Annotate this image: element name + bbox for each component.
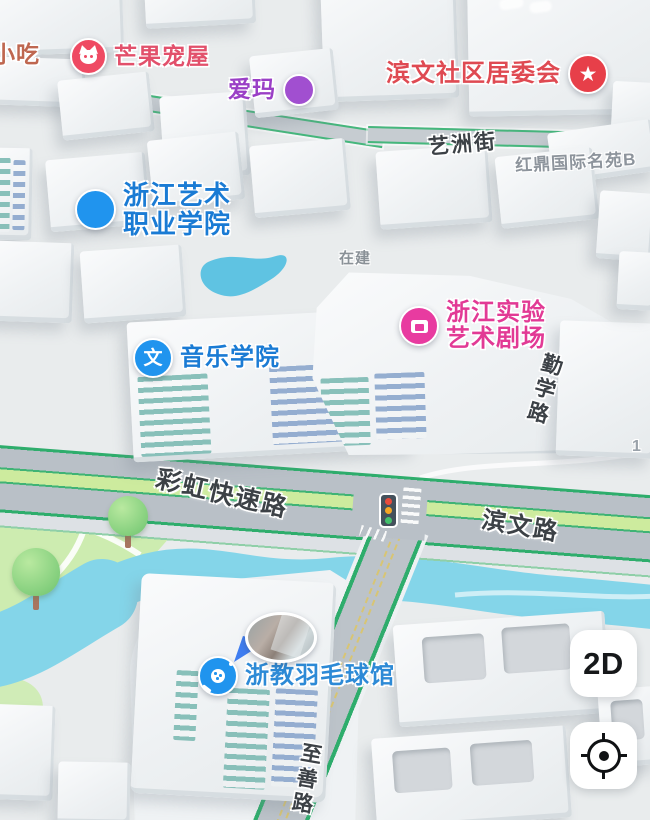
wen-glyph: 文 (143, 349, 162, 368)
poi-label-theater-line2: 艺术剧场 (446, 326, 546, 352)
building (0, 241, 74, 324)
building (0, 148, 33, 241)
poi-binwen-committee[interactable]: ★ 滨文社区居委会 (386, 54, 608, 94)
poi-label-aima: 爱玛 (228, 77, 276, 102)
poi-label-mango: 芒果宠屋 (114, 44, 210, 69)
poi-experimental-art-theater[interactable]: 浙江实验 艺术剧场 (399, 300, 546, 353)
shop-icon (283, 74, 315, 106)
building-windows (137, 373, 211, 457)
building (249, 138, 351, 218)
poi-label-theater-line1: 浙江实验 (446, 300, 546, 326)
pond (201, 255, 287, 296)
area-label-under-construction: 在建 (339, 247, 371, 268)
poi-aima[interactable]: 爱玛 (228, 74, 315, 106)
building (617, 251, 650, 311)
theater-icon (399, 306, 439, 346)
poi-badminton-hall[interactable]: 浙教羽毛球馆 (198, 656, 395, 696)
area-label-partial-number: 1 (632, 438, 642, 456)
poi-label-xiaochi: 小吃 (0, 42, 40, 67)
poi-label-badminton: 浙教羽毛球馆 (245, 663, 395, 689)
poi-xiaochi[interactable]: 小吃 (0, 42, 40, 67)
wen-icon: 文 (133, 338, 173, 378)
traffic-light-icon (379, 493, 398, 528)
badminton-icon (198, 656, 238, 696)
roof-inset (470, 740, 535, 786)
building-windows (173, 670, 199, 741)
view-mode-label: 2D (583, 646, 624, 682)
marker-photo-thumbnail (245, 612, 317, 663)
building (371, 725, 572, 820)
view-mode-2d-button[interactable]: 2D (570, 630, 637, 697)
poi-label-college: 浙江艺术 职业学院 (123, 181, 231, 238)
poi-music-school[interactable]: 文 音乐学院 (133, 338, 280, 378)
poi-label-college-line1: 浙江艺术 (123, 181, 231, 210)
photo-bubble-marker[interactable] (232, 610, 314, 662)
roof-inset (501, 623, 572, 674)
poi-label-theater: 浙江实验 艺术剧场 (446, 300, 546, 353)
poi-label-college-line2: 职业学院 (123, 210, 231, 239)
building-windows (0, 158, 11, 232)
poi-mango-pet-house[interactable]: 芒果宠屋 (70, 38, 210, 75)
poi-zhejiang-art-college[interactable]: 浙江艺术 职业学院 (75, 181, 231, 238)
poi-label-music: 音乐学院 (180, 345, 280, 371)
roof-inset (392, 747, 453, 793)
crosswalk (400, 487, 421, 524)
star-icon: ★ (568, 54, 608, 94)
building (57, 761, 130, 820)
building (80, 245, 187, 324)
graduation-cap-icon (75, 189, 116, 230)
map-canvas[interactable]: 艺洲街 彩虹快速路 滨文路 勤学路 至善路 红鼎国际名苑B 在建 1 小吃 芒果… (0, 0, 650, 820)
unreadable-clipped-label (499, 0, 524, 11)
tree (108, 496, 148, 548)
building-windows (223, 688, 270, 790)
building-windows (374, 372, 426, 440)
locate-button[interactable] (570, 722, 637, 789)
building (57, 71, 155, 140)
poi-label-committee: 滨文社区居委会 (386, 61, 561, 87)
cat-icon (70, 38, 107, 75)
unreadable-clipped-label (529, 0, 552, 14)
building (0, 704, 56, 801)
street-label-yizhou: 艺洲街 (427, 125, 498, 161)
locate-icon (587, 739, 621, 773)
building-windows (12, 160, 25, 230)
tree (12, 548, 60, 610)
roof-inset (422, 633, 487, 683)
